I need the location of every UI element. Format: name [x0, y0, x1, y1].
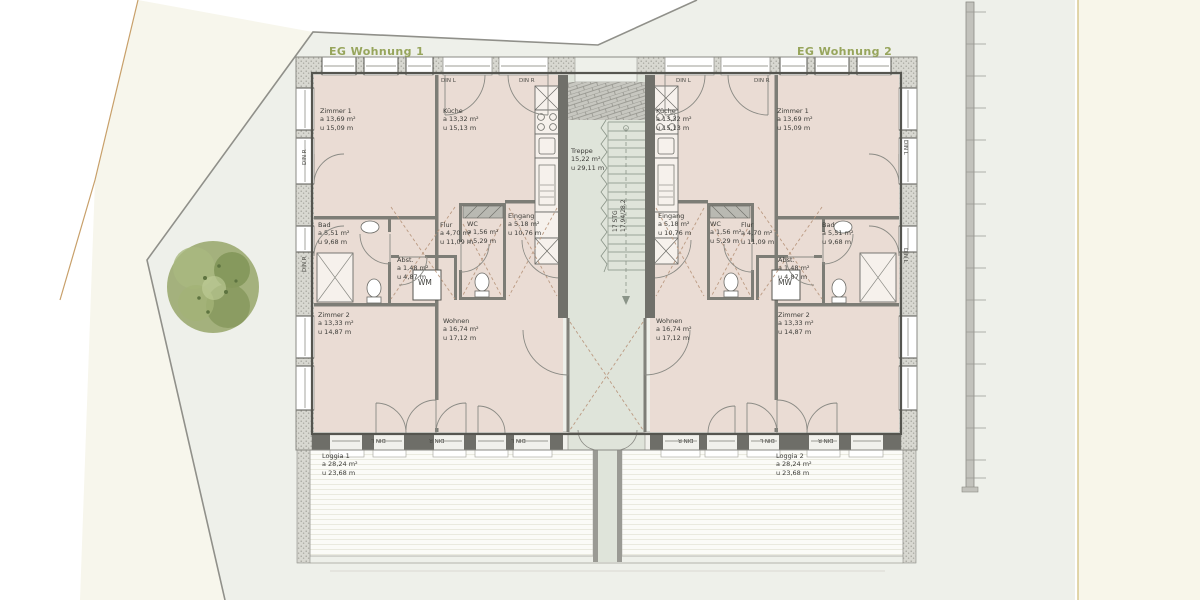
loggia-1-floor: [310, 450, 593, 556]
tree: [167, 241, 259, 333]
kitchen-units: [535, 86, 559, 264]
floor-plan-canvas: EG Wohnung 1 EG Wohnung 2 Zimmer 1a 13,6…: [0, 0, 1200, 600]
site-area-cream-right: [1078, 0, 1200, 600]
washing-machine: [413, 270, 441, 300]
loggia-side-wall-left: [297, 450, 310, 563]
floor-plan-drawing: [0, 0, 1200, 600]
stair-entrance-paving: [568, 82, 645, 120]
apartment-2-geometry: [650, 57, 917, 457]
loggia-2-floor: [622, 450, 903, 556]
apartment-1-geometry: [296, 57, 563, 457]
stair-exit-path: [598, 450, 617, 562]
loggia-side-wall-right: [903, 450, 916, 563]
stairwell-base: [568, 57, 645, 432]
